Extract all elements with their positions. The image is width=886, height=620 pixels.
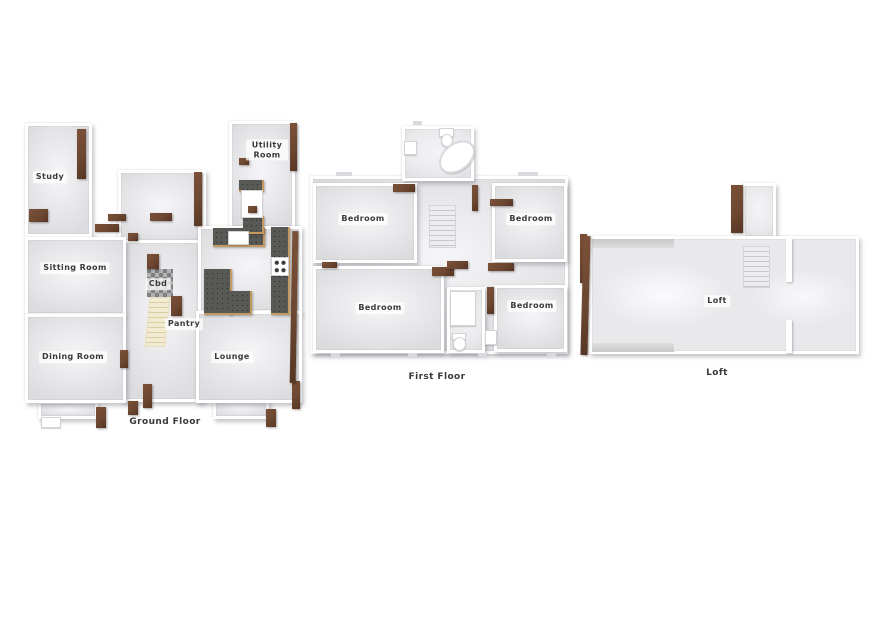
- door-panel: [171, 296, 182, 316]
- window-mark: [478, 353, 487, 357]
- porch-step: [41, 417, 61, 428]
- door-panel: [147, 254, 159, 269]
- room-label-bedroom: Bedroom: [506, 213, 555, 225]
- window-mark: [518, 172, 538, 176]
- door-panel: [120, 350, 128, 368]
- room-label-loft: Loft: [704, 295, 730, 307]
- loft-caption: Loft: [706, 368, 728, 378]
- door-panel: [128, 233, 138, 241]
- door-lintel: [393, 184, 415, 192]
- loft-plan: Loft Loft: [0, 0, 886, 620]
- side-wall-wood: [290, 123, 297, 171]
- shower-tray: [450, 291, 476, 326]
- door-lintel: [150, 213, 172, 221]
- door-panel: [96, 407, 106, 428]
- room-label-bedroom: Bedroom: [355, 302, 404, 314]
- utility-appliance: [241, 190, 263, 218]
- door-panel: [29, 209, 48, 222]
- door-panel: [292, 381, 300, 409]
- wash-basin: [404, 141, 417, 155]
- loft-divider-wall: [786, 239, 792, 282]
- loft-divider-wall: [786, 320, 792, 353]
- door-panel: [77, 129, 86, 179]
- door-lintel: [248, 206, 257, 213]
- door-panel: [194, 172, 202, 226]
- room-label-lounge: Lounge: [211, 351, 253, 363]
- loft-stair-tower: [742, 183, 776, 240]
- door-panel: [266, 409, 276, 427]
- ceiling-slope-shade: [592, 343, 674, 352]
- cabinet-fixture: [485, 330, 497, 345]
- toilet-bowl: [453, 337, 466, 351]
- kitchen-sink: [228, 231, 249, 245]
- window-mark: [336, 172, 352, 176]
- room-label-study: Study: [33, 171, 67, 183]
- door-lintel: [490, 199, 513, 206]
- first-staircase: [429, 205, 456, 248]
- door-panel: [487, 287, 494, 314]
- first-floor-caption: First Floor: [409, 372, 466, 382]
- window-mark: [547, 353, 556, 357]
- loft-staircase: [743, 246, 770, 288]
- door-lintel: [322, 262, 337, 268]
- door-panel: [731, 185, 743, 233]
- door-panel: [128, 401, 138, 415]
- window-mark: [413, 121, 422, 125]
- window-mark: [408, 353, 417, 357]
- hob-fixture: [271, 257, 289, 276]
- door-lintel: [488, 263, 514, 271]
- kitchen-island-a: [204, 269, 232, 315]
- ground-floor-caption: Ground Floor: [129, 417, 200, 427]
- door-lintel: [95, 224, 119, 232]
- room-label-cbd: Cbd: [146, 278, 171, 290]
- room-label-bedroom: Bedroom: [507, 300, 556, 312]
- room-label-bedroom: Bedroom: [338, 213, 387, 225]
- room-label-sitting-room: Sitting Room: [40, 262, 109, 274]
- door-panel: [472, 185, 478, 211]
- kitchen-island-b: [229, 291, 252, 315]
- ceiling-slope-shade: [592, 239, 674, 248]
- room-label-dining-room: Dining Room: [39, 351, 107, 363]
- front-door: [143, 384, 152, 408]
- room-label-pantry: Pantry: [165, 318, 203, 330]
- door-lintel: [447, 261, 468, 269]
- door-lintel: [108, 214, 126, 221]
- room-label-utility-room: Utility Room: [246, 139, 288, 160]
- floorplan-canvas: Study Sitting Room Dining Room Cbd Pantr…: [0, 0, 886, 620]
- window-mark: [331, 353, 340, 357]
